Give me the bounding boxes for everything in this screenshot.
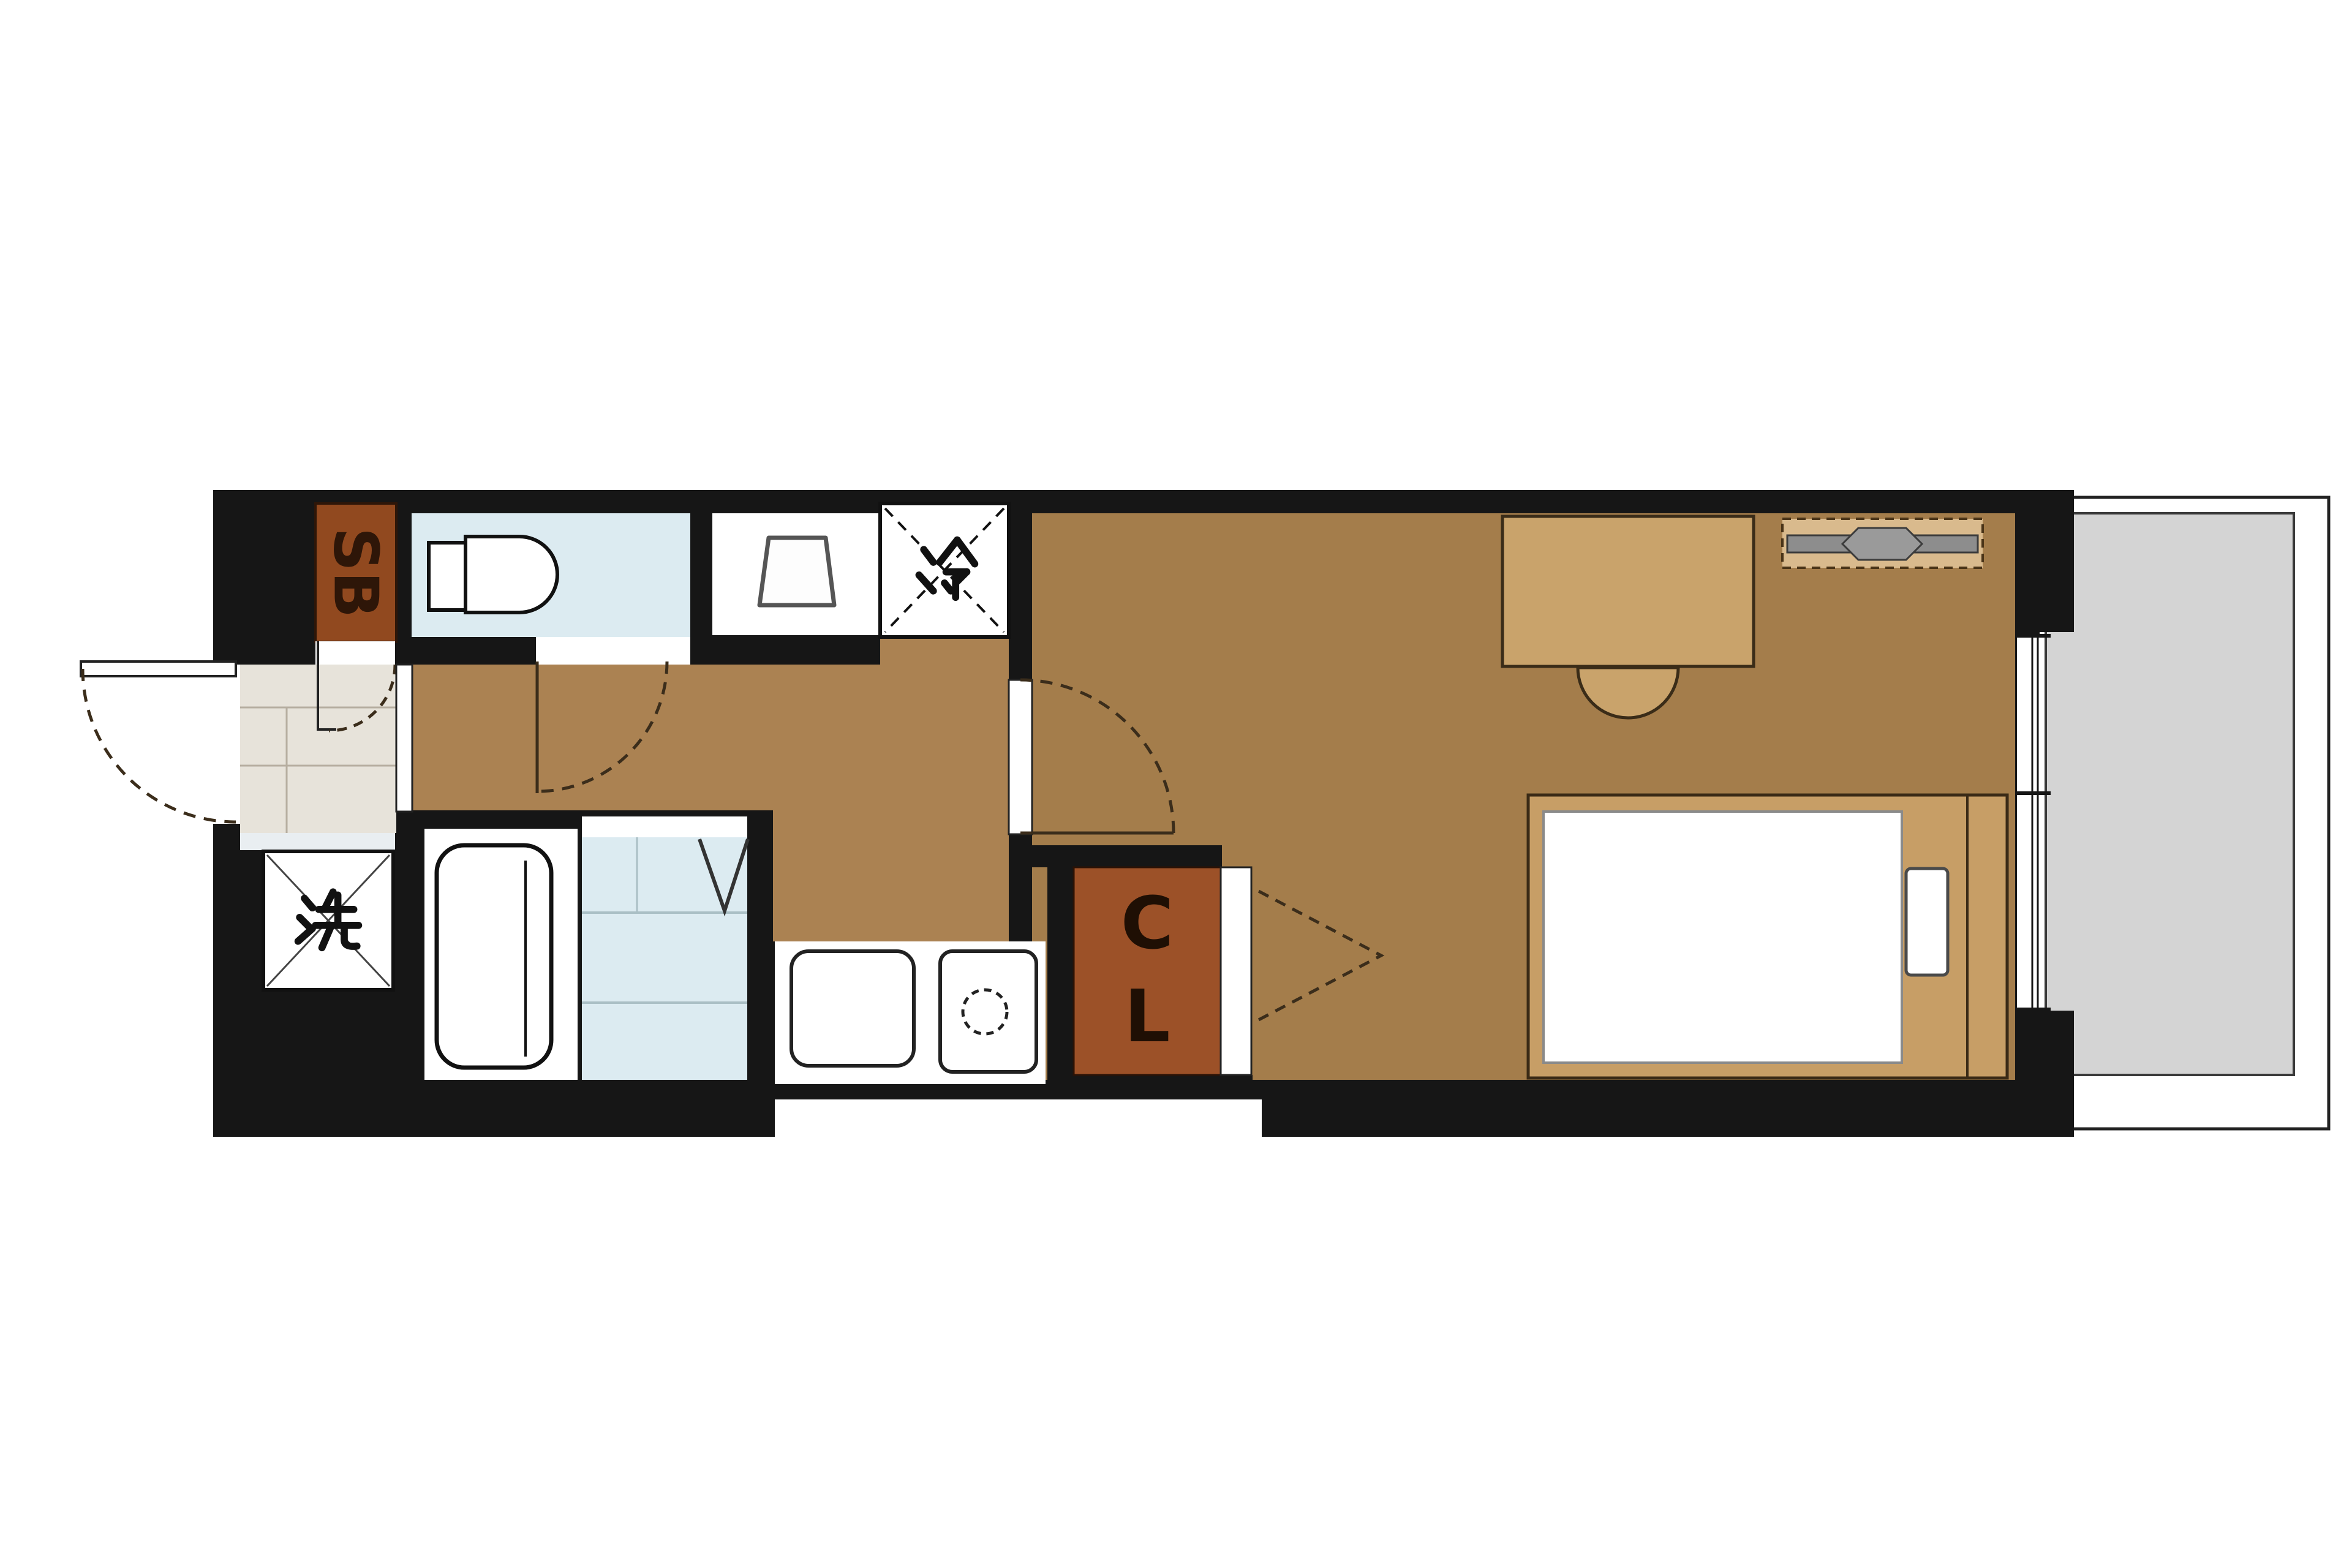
entrance-step-strip bbox=[240, 833, 395, 850]
closet-label-c: C bbox=[1121, 881, 1174, 965]
shower-room-floor bbox=[582, 837, 747, 1080]
toilet-doorway bbox=[536, 637, 690, 665]
toilet-tank bbox=[429, 543, 466, 610]
toilet-bowl bbox=[466, 537, 557, 612]
washbasin bbox=[759, 538, 834, 605]
bathtub bbox=[437, 845, 551, 1068]
floorplan-page: SB 冷 C L 洗 bbox=[0, 0, 2352, 1568]
entrance-door-leaf bbox=[81, 661, 236, 676]
corridor-floor-under-fridge bbox=[880, 637, 1009, 668]
closet-left-wall bbox=[1047, 845, 1075, 1097]
room-door-leaf bbox=[1009, 680, 1032, 834]
window-top-wall-stub bbox=[2015, 490, 2074, 632]
corridor-door-leaf bbox=[396, 665, 412, 812]
bed-mattress bbox=[1543, 812, 1902, 1063]
desk bbox=[1502, 516, 1754, 666]
closet-bottom-wall bbox=[1047, 1075, 1253, 1097]
shoe-box-label: SB bbox=[320, 527, 392, 618]
floorplan-drawing: SB 冷 C L 洗 bbox=[0, 0, 2352, 1568]
window-bottom-wall-stub bbox=[2015, 1011, 2074, 1137]
stove-burner bbox=[963, 990, 1007, 1034]
kitchen-sink bbox=[791, 951, 914, 1066]
hall-door-leaf bbox=[315, 641, 395, 665]
entrance-doorway-gap bbox=[211, 665, 240, 824]
shower-door-strip bbox=[582, 816, 747, 839]
closet-label-l: L bbox=[1124, 974, 1170, 1058]
bottom-edge-step bbox=[775, 1099, 1262, 1137]
bed-pillow bbox=[1906, 869, 1948, 975]
balcony-floor bbox=[2046, 513, 2294, 1075]
tv-body bbox=[1842, 528, 1922, 560]
corridor-floor bbox=[412, 665, 1009, 810]
kitchen-floor bbox=[773, 810, 1009, 941]
closet-door bbox=[1221, 867, 1251, 1075]
